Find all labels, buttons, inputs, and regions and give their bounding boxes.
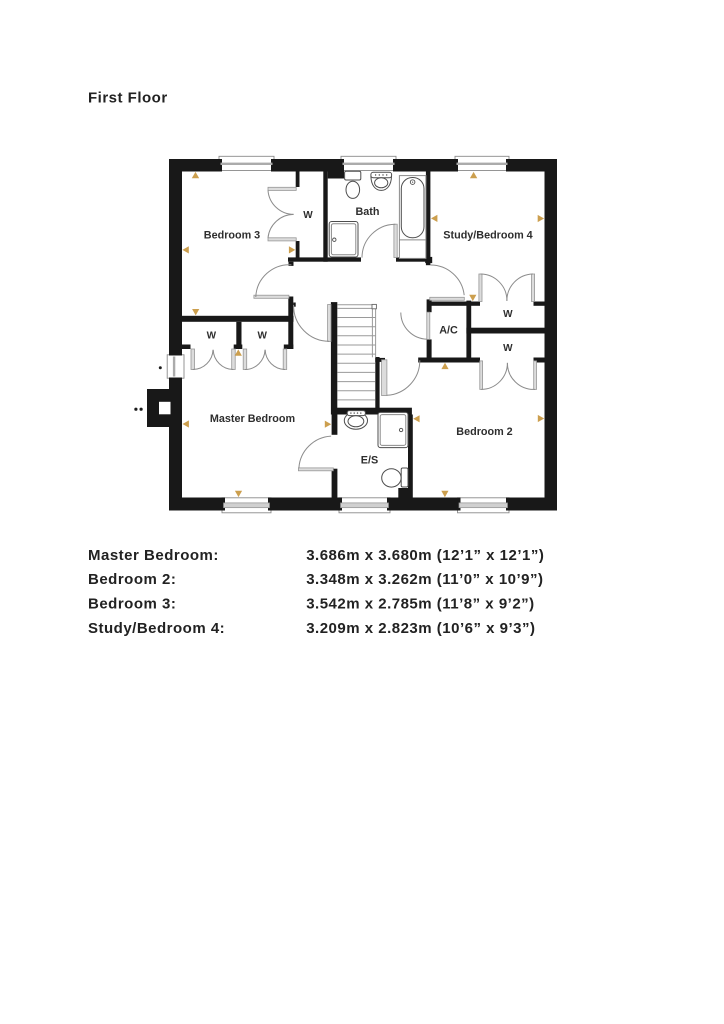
svg-text:Study/Bedroom 4: Study/Bedroom 4 — [443, 229, 532, 241]
svg-text:Study/Bedroom 4:: Study/Bedroom 4: — [88, 620, 225, 637]
svg-text:E/S: E/S — [361, 454, 378, 466]
svg-text:Bedroom 3: Bedroom 3 — [204, 229, 260, 241]
svg-text:A/C: A/C — [439, 324, 458, 336]
svg-text:3.348m x 3.262m (11’0” x 10’9”: 3.348m x 3.262m (11’0” x 10’9”) — [306, 571, 543, 588]
svg-text:W: W — [207, 330, 217, 341]
svg-text:Master Bedroom: Master Bedroom — [210, 413, 295, 425]
svg-text:Bedroom 2:: Bedroom 2: — [88, 571, 176, 588]
svg-text:W: W — [257, 330, 267, 341]
svg-text:W: W — [303, 210, 313, 221]
svg-text:Bedroom 3:: Bedroom 3: — [88, 596, 176, 613]
svg-text:3.686m x 3.680m (12’1” x 12’1”: 3.686m x 3.680m (12’1” x 12’1”) — [306, 547, 544, 564]
svg-text:W: W — [503, 343, 513, 354]
svg-text:Bedroom 2: Bedroom 2 — [456, 426, 512, 438]
svg-text:3.542m x 2.785m (11’8” x 9’2”): 3.542m x 2.785m (11’8” x 9’2”) — [306, 596, 534, 613]
svg-text:3.209m x 2.823m (10’6” x 9’3”): 3.209m x 2.823m (10’6” x 9’3”) — [306, 620, 535, 637]
svg-text:Bath: Bath — [356, 206, 380, 218]
svg-text:W: W — [503, 309, 513, 320]
svg-text:First Floor: First Floor — [88, 90, 168, 107]
svg-text:Master Bedroom:: Master Bedroom: — [88, 547, 219, 564]
